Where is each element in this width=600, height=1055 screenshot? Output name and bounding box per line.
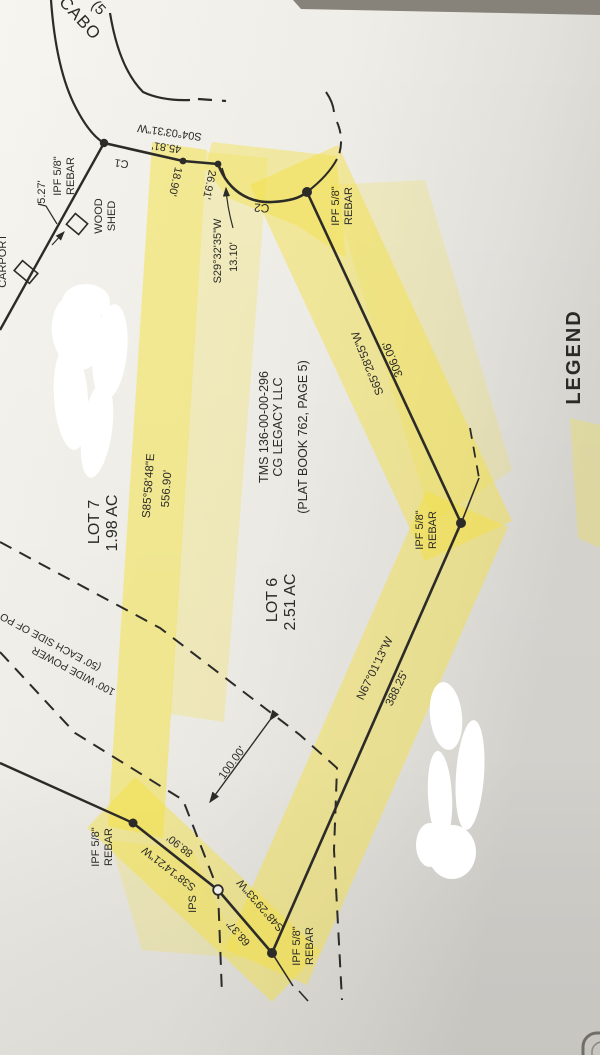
label-ipf-west-2: REBAR bbox=[103, 828, 115, 866]
label-ipf-east-1: IPF 5/8" bbox=[414, 510, 426, 549]
label-carport: CARPORT bbox=[0, 234, 9, 288]
point-ipf-ne bbox=[302, 187, 312, 197]
label-ipf-east-2: REBAR bbox=[427, 511, 439, 549]
plat-photo: CABO (5 S04°03'31"W 45.81' 18.90' 26.91'… bbox=[0, 0, 600, 1055]
point-ips bbox=[213, 885, 223, 895]
label-shed: SHED bbox=[106, 201, 118, 232]
label-curve-c2: C2 bbox=[253, 200, 270, 215]
label-ipf-nw-1: IPF 5/8" bbox=[52, 156, 64, 195]
point-p2 bbox=[215, 161, 222, 168]
label-ipf-nw-2: REBAR bbox=[65, 157, 77, 195]
label-tie-bearing: S29°32'35"W bbox=[212, 218, 224, 283]
label-tie-distance: 13.10' bbox=[228, 242, 240, 272]
label-lot7-area: 1.98 AC bbox=[104, 495, 121, 552]
label-ipf-ne-2: REBAR bbox=[343, 187, 355, 225]
point-p1 bbox=[180, 158, 187, 165]
label-ipf-south-2: REBAR bbox=[304, 927, 316, 965]
label-ipf-ne-1: IPF 5/8" bbox=[330, 186, 342, 225]
label-shed-offset: 5.27' bbox=[36, 180, 48, 204]
label-lot6-area: 2.51 AC bbox=[282, 574, 299, 631]
label-lot7-name: LOT 7 bbox=[86, 500, 103, 544]
label-plat-ref: (PLAT BOOK 762, PAGE 5) bbox=[296, 360, 310, 514]
label-ipf-south-1: IPF 5/8" bbox=[291, 926, 303, 965]
point-ipf-nw bbox=[100, 139, 108, 147]
label-wood: WOOD bbox=[93, 198, 105, 233]
label-owner: CG LEGACY LLC bbox=[271, 377, 285, 476]
label-tms: TMS 136-00-00-296 bbox=[257, 371, 271, 483]
point-ipf-south bbox=[267, 948, 277, 958]
plat-drawing: CABO (5 S04°03'31"W 45.81' 18.90' 26.91'… bbox=[0, 0, 600, 1055]
label-ips: IPS bbox=[187, 895, 199, 913]
label-curve-c1: C1 bbox=[114, 156, 130, 170]
whiteout-right-blob bbox=[416, 823, 444, 867]
legend-title: LEGEND bbox=[563, 309, 585, 404]
label-lot6-name: LOT 6 bbox=[264, 578, 281, 622]
point-ipf-east bbox=[456, 518, 466, 528]
point-ipf-west bbox=[129, 819, 138, 828]
label-ipf-west-1: IPF 5/8" bbox=[90, 827, 102, 866]
